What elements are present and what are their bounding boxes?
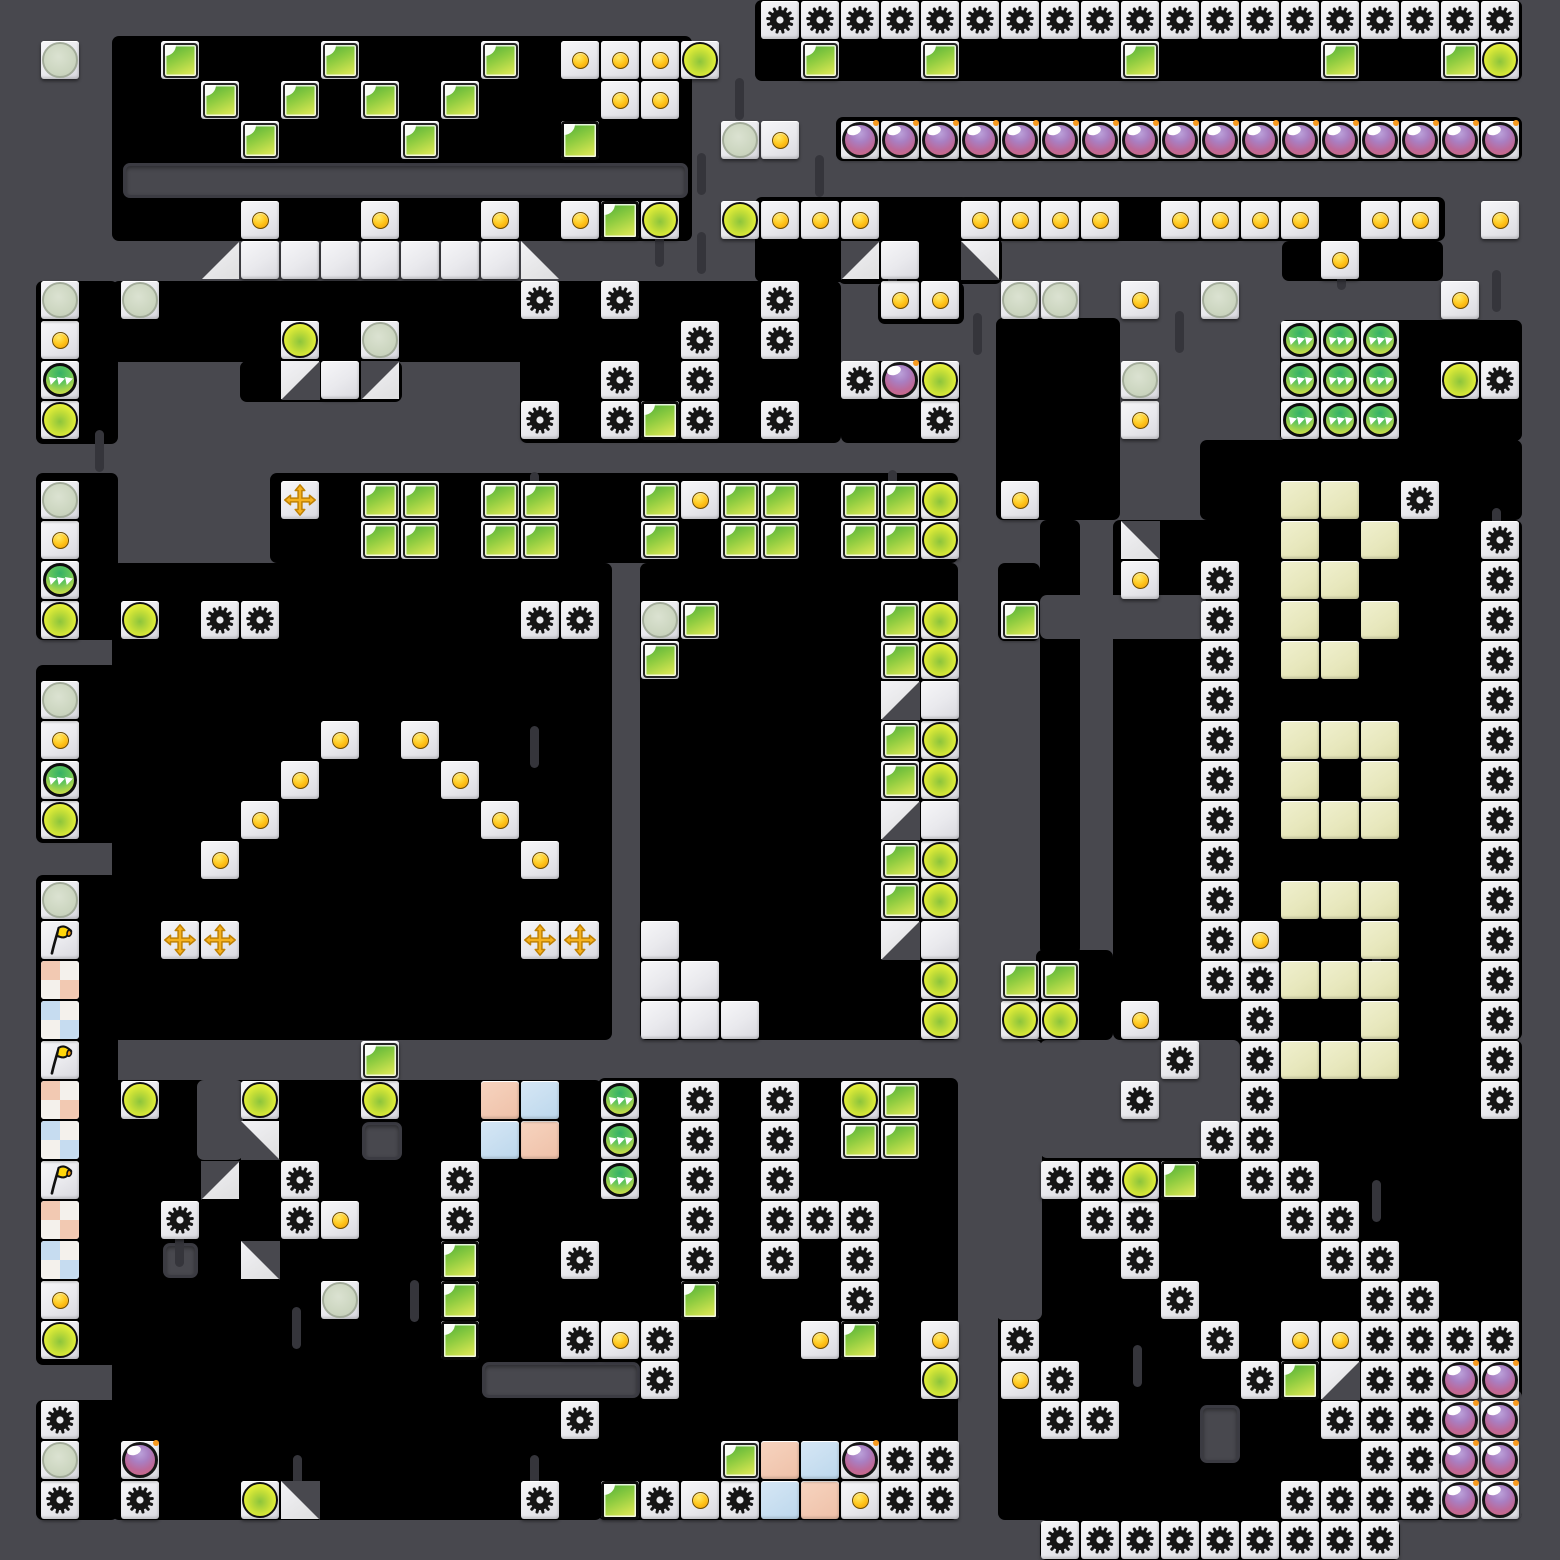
move-cross-tile[interactable] — [281, 481, 319, 519]
jelly-block-tile[interactable] — [361, 521, 399, 559]
jelly-block-framed-tile[interactable] — [601, 1481, 639, 1519]
gear-saw-tile[interactable] — [441, 1161, 479, 1199]
gear-saw-tile[interactable] — [1201, 721, 1239, 759]
fruit-ball-tile[interactable] — [1481, 41, 1519, 79]
jelly-block-tile[interactable] — [481, 41, 519, 79]
gray-socket-tile[interactable] — [41, 281, 79, 319]
dot-pellet-tile[interactable] — [1281, 201, 1319, 239]
gear-saw-tile[interactable] — [881, 1, 919, 39]
fruit-ball-tile[interactable] — [921, 881, 959, 919]
gray-socket-tile[interactable] — [1041, 281, 1079, 319]
gear-saw-tile[interactable] — [641, 1321, 679, 1359]
gear-saw-tile[interactable] — [1041, 1161, 1079, 1199]
khaki-block[interactable] — [1281, 601, 1319, 639]
jelly-block-tile[interactable] — [1321, 41, 1359, 79]
gear-saw-tile[interactable] — [1201, 881, 1239, 919]
gear-saw-tile[interactable] — [1401, 481, 1439, 519]
jelly-block-tile[interactable] — [881, 521, 919, 559]
gear-saw-tile[interactable] — [1081, 1, 1119, 39]
jelly-block-tile[interactable] — [761, 521, 799, 559]
khaki-block[interactable] — [1321, 561, 1359, 599]
jelly-block-tile[interactable] — [681, 601, 719, 639]
dot-pellet-tile[interactable] — [41, 721, 79, 759]
fruit-ball-tile[interactable] — [241, 1481, 279, 1519]
dot-pellet-tile[interactable] — [241, 201, 279, 239]
gear-saw-tile[interactable] — [681, 321, 719, 359]
fruit-ball-tile[interactable] — [681, 41, 719, 79]
move-cross-tile[interactable] — [561, 921, 599, 959]
khaki-block[interactable] — [1361, 721, 1399, 759]
dot-pellet-tile[interactable] — [761, 121, 799, 159]
dot-pellet-tile[interactable] — [1321, 241, 1359, 279]
panel-tile-blue[interactable] — [761, 1481, 799, 1519]
gear-saw-tile[interactable] — [201, 601, 239, 639]
gear-saw-tile[interactable] — [681, 1201, 719, 1239]
bomb-berry-tile[interactable] — [1441, 1401, 1479, 1439]
gear-saw-tile[interactable] — [1121, 1201, 1159, 1239]
bomb-berry-tile[interactable] — [1081, 121, 1119, 159]
jelly-block-tile[interactable] — [881, 841, 919, 879]
gear-saw-tile[interactable] — [1201, 1, 1239, 39]
khaki-block[interactable] — [1281, 881, 1319, 919]
khaki-block[interactable] — [1361, 881, 1399, 919]
gear-saw-tile[interactable] — [561, 1321, 599, 1359]
jelly-block-tile[interactable] — [401, 121, 439, 159]
dot-pellet-tile[interactable] — [1281, 1321, 1319, 1359]
bomb-berry-tile[interactable] — [1481, 1401, 1519, 1439]
gear-saw-tile[interactable] — [1201, 641, 1239, 679]
gear-saw-tile[interactable] — [1121, 1241, 1159, 1279]
gray-socket-tile[interactable] — [641, 601, 679, 639]
gear-saw-tile[interactable] — [1281, 1521, 1319, 1559]
gear-saw-tile[interactable] — [1201, 1121, 1239, 1159]
jelly-block-tile[interactable] — [641, 481, 679, 519]
gear-saw-tile[interactable] — [1241, 1041, 1279, 1079]
gear-saw-tile[interactable] — [681, 361, 719, 399]
gear-saw-tile[interactable] — [601, 401, 639, 439]
gear-saw-tile[interactable] — [1281, 1481, 1319, 1519]
gear-saw-tile[interactable] — [561, 601, 599, 639]
jelly-block-framed-tile[interactable] — [441, 1241, 479, 1279]
gear-saw-tile[interactable] — [1081, 1201, 1119, 1239]
gear-saw-tile[interactable] — [1401, 1401, 1439, 1439]
gear-saw-tile[interactable] — [1361, 1441, 1399, 1479]
jelly-block-tile[interactable] — [361, 1041, 399, 1079]
gear-saw-tile[interactable] — [1481, 1081, 1519, 1119]
jelly-block-tile[interactable] — [881, 1121, 919, 1159]
gear-saw-tile[interactable] — [1401, 1281, 1439, 1319]
jelly-block-framed-tile[interactable] — [601, 201, 639, 239]
panel-tile-salmon[interactable] — [801, 1481, 839, 1519]
jelly-block-tile[interactable] — [241, 121, 279, 159]
gear-saw-tile[interactable] — [1321, 1521, 1359, 1559]
dot-pellet-tile[interactable] — [641, 81, 679, 119]
jelly-block-tile[interactable] — [881, 601, 919, 639]
jelly-block-tile[interactable] — [641, 521, 679, 559]
gear-saw-tile[interactable] — [801, 1, 839, 39]
gear-saw-tile[interactable] — [921, 1441, 959, 1479]
gear-saw-tile[interactable] — [1481, 361, 1519, 399]
flag-tile[interactable] — [41, 1161, 79, 1199]
gear-saw-tile[interactable] — [881, 1441, 919, 1479]
fruit-ball-tile[interactable] — [41, 1321, 79, 1359]
jelly-block-tile[interactable] — [521, 521, 559, 559]
gear-saw-tile[interactable] — [1241, 1121, 1279, 1159]
dot-pellet-tile[interactable] — [1161, 201, 1199, 239]
gear-saw-tile[interactable] — [1361, 1321, 1399, 1359]
gear-saw-tile[interactable] — [1081, 1161, 1119, 1199]
checker-tile-salmon[interactable] — [41, 1201, 79, 1239]
jelly-block-tile[interactable] — [361, 81, 399, 119]
dot-pellet-tile[interactable] — [481, 201, 519, 239]
gear-saw-tile[interactable] — [1201, 841, 1239, 879]
gear-saw-tile[interactable] — [1201, 681, 1239, 719]
dot-pellet-tile[interactable] — [681, 1481, 719, 1519]
bomb-berry-tile[interactable] — [1481, 121, 1519, 159]
gear-saw-tile[interactable] — [1161, 1521, 1199, 1559]
gear-saw-tile[interactable] — [1481, 961, 1519, 999]
gray-socket-tile[interactable] — [41, 681, 79, 719]
jelly-block-tile[interactable] — [361, 481, 399, 519]
fruit-ball-tile[interactable] — [921, 761, 959, 799]
gear-saw-tile[interactable] — [1241, 961, 1279, 999]
jelly-block-framed-tile[interactable] — [841, 1321, 879, 1359]
move-cross-tile[interactable] — [161, 921, 199, 959]
gear-saw-tile[interactable] — [1201, 961, 1239, 999]
khaki-block[interactable] — [1321, 721, 1359, 759]
gear-saw-tile[interactable] — [1481, 841, 1519, 879]
gear-saw-tile[interactable] — [1361, 1, 1399, 39]
dot-pellet-tile[interactable] — [801, 1321, 839, 1359]
jelly-block-tile[interactable] — [761, 481, 799, 519]
fruit-ball-tile[interactable] — [921, 481, 959, 519]
khaki-block[interactable] — [1281, 761, 1319, 799]
gear-saw-tile[interactable] — [1241, 1001, 1279, 1039]
jelly-block-tile[interactable] — [1121, 41, 1159, 79]
jelly-block-tile[interactable] — [281, 81, 319, 119]
jelly-block-tile[interactable] — [1441, 41, 1479, 79]
dot-pellet-tile[interactable] — [601, 81, 639, 119]
bomb-berry-tile[interactable] — [1481, 1481, 1519, 1519]
gear-saw-tile[interactable] — [1401, 1361, 1439, 1399]
gray-socket-tile[interactable] — [721, 121, 759, 159]
fruit-ball-tile[interactable] — [921, 601, 959, 639]
gear-saw-tile[interactable] — [921, 1481, 959, 1519]
jelly-block-tile[interactable] — [641, 641, 679, 679]
dot-pellet-tile[interactable] — [1001, 481, 1039, 519]
gear-saw-tile[interactable] — [1481, 881, 1519, 919]
gear-saw-tile[interactable] — [1481, 681, 1519, 719]
dot-pellet-tile[interactable] — [401, 721, 439, 759]
fruit-ball-tile[interactable] — [121, 601, 159, 639]
khaki-block[interactable] — [1281, 481, 1319, 519]
gear-saw-tile[interactable] — [1321, 1, 1359, 39]
gear-saw-tile[interactable] — [681, 1241, 719, 1279]
gear-saw-tile[interactable] — [1201, 801, 1239, 839]
gear-saw-tile[interactable] — [1241, 1081, 1279, 1119]
gear-saw-tile[interactable] — [761, 401, 799, 439]
gear-saw-tile[interactable] — [281, 1161, 319, 1199]
gear-saw-tile[interactable] — [1481, 761, 1519, 799]
striped-fruit-tile[interactable] — [1361, 321, 1399, 359]
gear-saw-tile[interactable] — [761, 1201, 799, 1239]
gear-saw-tile[interactable] — [681, 1121, 719, 1159]
dot-pellet-tile[interactable] — [41, 1281, 79, 1319]
gear-saw-tile[interactable] — [761, 321, 799, 359]
fruit-ball-tile[interactable] — [921, 641, 959, 679]
khaki-block[interactable] — [1361, 801, 1399, 839]
fruit-ball-tile[interactable] — [41, 601, 79, 639]
jelly-block-tile[interactable] — [881, 721, 919, 759]
gear-saw-tile[interactable] — [1081, 1521, 1119, 1559]
gear-saw-tile[interactable] — [841, 1281, 879, 1319]
dot-pellet-tile[interactable] — [921, 281, 959, 319]
bomb-berry-tile[interactable] — [1361, 121, 1399, 159]
dot-pellet-tile[interactable] — [1001, 201, 1039, 239]
bomb-berry-tile[interactable] — [1441, 1361, 1479, 1399]
gear-saw-tile[interactable] — [1201, 921, 1239, 959]
gear-saw-tile[interactable] — [1121, 1521, 1159, 1559]
gray-socket-tile[interactable] — [1001, 281, 1039, 319]
gear-saw-tile[interactable] — [681, 1081, 719, 1119]
gear-saw-tile[interactable] — [1121, 1081, 1159, 1119]
gear-saw-tile[interactable] — [1401, 1, 1439, 39]
jelly-block-tile[interactable] — [841, 521, 879, 559]
gear-saw-tile[interactable] — [1361, 1521, 1399, 1559]
striped-fruit-tile[interactable] — [601, 1081, 639, 1119]
jelly-block-tile[interactable] — [721, 1441, 759, 1479]
dot-pellet-tile[interactable] — [241, 801, 279, 839]
bomb-berry-tile[interactable] — [1401, 121, 1439, 159]
bomb-berry-tile[interactable] — [961, 121, 999, 159]
gear-saw-tile[interactable] — [241, 601, 279, 639]
gear-saw-tile[interactable] — [1161, 1, 1199, 39]
bomb-berry-tile[interactable] — [1441, 121, 1479, 159]
jelly-block-tile[interactable] — [921, 41, 959, 79]
dot-pellet-tile[interactable] — [1241, 921, 1279, 959]
gray-socket-tile[interactable] — [1201, 281, 1239, 319]
fruit-ball-tile[interactable] — [641, 201, 679, 239]
panel-tile-salmon[interactable] — [521, 1121, 559, 1159]
khaki-block[interactable] — [1361, 961, 1399, 999]
gear-saw-tile[interactable] — [1041, 1, 1079, 39]
fruit-ball-tile[interactable] — [241, 1081, 279, 1119]
dot-pellet-tile[interactable] — [641, 41, 679, 79]
gear-saw-tile[interactable] — [1081, 1401, 1119, 1439]
gear-saw-tile[interactable] — [681, 1161, 719, 1199]
panel-tile-blue[interactable] — [481, 1121, 519, 1159]
bomb-berry-tile[interactable] — [1481, 1361, 1519, 1399]
gear-saw-tile[interactable] — [281, 1201, 319, 1239]
checker-tile-blue[interactable] — [41, 1001, 79, 1039]
dot-pellet-tile[interactable] — [841, 201, 879, 239]
striped-fruit-tile[interactable] — [1281, 401, 1319, 439]
khaki-block[interactable] — [1361, 1041, 1399, 1079]
dot-pellet-tile[interactable] — [601, 41, 639, 79]
jelly-block-tile[interactable] — [881, 881, 919, 919]
gear-saw-tile[interactable] — [1201, 1521, 1239, 1559]
khaki-block[interactable] — [1281, 801, 1319, 839]
move-cross-tile[interactable] — [201, 921, 239, 959]
gear-saw-tile[interactable] — [1161, 1281, 1199, 1319]
gear-saw-tile[interactable] — [1401, 1321, 1439, 1359]
striped-fruit-tile[interactable] — [41, 761, 79, 799]
gear-saw-tile[interactable] — [961, 1, 999, 39]
jelly-block-tile[interactable] — [401, 521, 439, 559]
striped-fruit-tile[interactable] — [601, 1121, 639, 1159]
gear-saw-tile[interactable] — [521, 281, 559, 319]
jelly-block-tile[interactable] — [201, 81, 239, 119]
striped-fruit-tile[interactable] — [1321, 401, 1359, 439]
bomb-berry-tile[interactable] — [841, 121, 879, 159]
dot-pellet-tile[interactable] — [921, 1321, 959, 1359]
jelly-block-framed-tile[interactable] — [681, 1281, 719, 1319]
dot-pellet-tile[interactable] — [201, 841, 239, 879]
khaki-block[interactable] — [1361, 921, 1399, 959]
jelly-block-tile[interactable] — [881, 761, 919, 799]
bomb-berry-tile[interactable] — [1441, 1441, 1479, 1479]
jelly-block-tile[interactable] — [401, 481, 439, 519]
gear-saw-tile[interactable] — [1041, 1361, 1079, 1399]
jelly-block-tile[interactable] — [721, 521, 759, 559]
khaki-block[interactable] — [1361, 1001, 1399, 1039]
fruit-ball-tile[interactable] — [921, 721, 959, 759]
jelly-block-tile[interactable] — [1001, 961, 1039, 999]
gray-socket-tile[interactable] — [41, 1441, 79, 1479]
striped-fruit-tile[interactable] — [1321, 361, 1359, 399]
bomb-berry-tile[interactable] — [881, 121, 919, 159]
panel-tile-salmon[interactable] — [481, 1081, 519, 1119]
gray-socket-tile[interactable] — [41, 881, 79, 919]
gear-saw-tile[interactable] — [1281, 1, 1319, 39]
dot-pellet-tile[interactable] — [1121, 281, 1159, 319]
dot-pellet-tile[interactable] — [361, 201, 399, 239]
panel-tile-blue[interactable] — [521, 1081, 559, 1119]
gear-saw-tile[interactable] — [761, 1, 799, 39]
jelly-block-tile[interactable] — [841, 481, 879, 519]
gear-saw-tile[interactable] — [681, 401, 719, 439]
gear-saw-tile[interactable] — [441, 1201, 479, 1239]
gray-socket-tile[interactable] — [361, 321, 399, 359]
gear-saw-tile[interactable] — [1281, 1201, 1319, 1239]
flag-tile[interactable] — [41, 921, 79, 959]
gear-saw-tile[interactable] — [1481, 641, 1519, 679]
khaki-block[interactable] — [1321, 641, 1359, 679]
gear-saw-tile[interactable] — [761, 1081, 799, 1119]
dot-pellet-tile[interactable] — [441, 761, 479, 799]
jelly-block-framed-tile[interactable] — [1281, 1361, 1319, 1399]
dot-pellet-tile[interactable] — [41, 321, 79, 359]
fruit-ball-tile[interactable] — [921, 521, 959, 559]
jelly-block-tile[interactable] — [161, 41, 199, 79]
striped-fruit-tile[interactable] — [41, 561, 79, 599]
bomb-berry-tile[interactable] — [841, 1441, 879, 1479]
gear-saw-tile[interactable] — [1481, 1321, 1519, 1359]
bomb-berry-tile[interactable] — [1441, 1481, 1479, 1519]
khaki-block[interactable] — [1321, 961, 1359, 999]
khaki-block[interactable] — [1281, 521, 1319, 559]
khaki-block[interactable] — [1321, 881, 1359, 919]
gear-saw-tile[interactable] — [121, 1481, 159, 1519]
gray-socket-tile[interactable] — [321, 1281, 359, 1319]
fruit-ball-tile[interactable] — [281, 321, 319, 359]
jelly-block-framed-tile[interactable] — [1161, 1161, 1199, 1199]
khaki-block[interactable] — [1281, 641, 1319, 679]
jelly-block-tile[interactable] — [1001, 601, 1039, 639]
gear-saw-tile[interactable] — [1481, 1, 1519, 39]
checker-tile-blue[interactable] — [41, 1121, 79, 1159]
striped-fruit-tile[interactable] — [1321, 321, 1359, 359]
gear-saw-tile[interactable] — [601, 361, 639, 399]
dot-pellet-tile[interactable] — [1121, 401, 1159, 439]
dot-pellet-tile[interactable] — [961, 201, 999, 239]
checker-tile-salmon[interactable] — [41, 961, 79, 999]
fruit-ball-tile[interactable] — [361, 1081, 399, 1119]
dot-pellet-tile[interactable] — [841, 1481, 879, 1519]
dot-pellet-tile[interactable] — [321, 1201, 359, 1239]
bomb-berry-tile[interactable] — [1201, 121, 1239, 159]
gear-saw-tile[interactable] — [1281, 1161, 1319, 1199]
jelly-block-tile[interactable] — [1041, 961, 1079, 999]
gear-saw-tile[interactable] — [1361, 1401, 1399, 1439]
jelly-block-tile[interactable] — [881, 481, 919, 519]
gear-saw-tile[interactable] — [921, 401, 959, 439]
jelly-block-tile[interactable] — [481, 481, 519, 519]
striped-fruit-tile[interactable] — [1361, 361, 1399, 399]
jelly-block-framed-tile[interactable] — [441, 1321, 479, 1359]
jelly-block-tile[interactable] — [521, 481, 559, 519]
gear-saw-tile[interactable] — [1121, 1, 1159, 39]
gear-saw-tile[interactable] — [561, 1401, 599, 1439]
fruit-ball-tile[interactable] — [1001, 1001, 1039, 1039]
dot-pellet-tile[interactable] — [801, 201, 839, 239]
dot-pellet-tile[interactable] — [561, 41, 599, 79]
gray-socket-tile[interactable] — [121, 281, 159, 319]
gear-saw-tile[interactable] — [761, 281, 799, 319]
gear-saw-tile[interactable] — [521, 401, 559, 439]
gray-socket-tile[interactable] — [41, 41, 79, 79]
checker-tile-salmon[interactable] — [41, 1081, 79, 1119]
khaki-block[interactable] — [1321, 801, 1359, 839]
gear-saw-tile[interactable] — [1441, 1, 1479, 39]
gear-saw-tile[interactable] — [841, 1241, 879, 1279]
khaki-block[interactable] — [1361, 601, 1399, 639]
gray-socket-tile[interactable] — [41, 481, 79, 519]
bomb-berry-tile[interactable] — [921, 121, 959, 159]
gear-saw-tile[interactable] — [1401, 1441, 1439, 1479]
gear-saw-tile[interactable] — [1241, 1521, 1279, 1559]
dot-pellet-tile[interactable] — [561, 201, 599, 239]
gear-saw-tile[interactable] — [1481, 921, 1519, 959]
gear-saw-tile[interactable] — [1001, 1, 1039, 39]
gear-saw-tile[interactable] — [921, 1, 959, 39]
jelly-block-tile[interactable] — [881, 641, 919, 679]
gear-saw-tile[interactable] — [881, 1481, 919, 1519]
jelly-block-tile[interactable] — [721, 481, 759, 519]
khaki-block[interactable] — [1361, 761, 1399, 799]
gear-saw-tile[interactable] — [1201, 561, 1239, 599]
panel-tile-salmon[interactable] — [761, 1441, 799, 1479]
dot-pellet-tile[interactable] — [601, 1321, 639, 1359]
gear-saw-tile[interactable] — [1481, 721, 1519, 759]
gear-saw-tile[interactable] — [1241, 1, 1279, 39]
gear-saw-tile[interactable] — [1041, 1521, 1079, 1559]
khaki-block[interactable] — [1281, 561, 1319, 599]
dot-pellet-tile[interactable] — [1201, 201, 1239, 239]
bomb-berry-tile[interactable] — [1121, 121, 1159, 159]
gear-saw-tile[interactable] — [1481, 561, 1519, 599]
jelly-block-framed-tile[interactable] — [561, 121, 599, 159]
